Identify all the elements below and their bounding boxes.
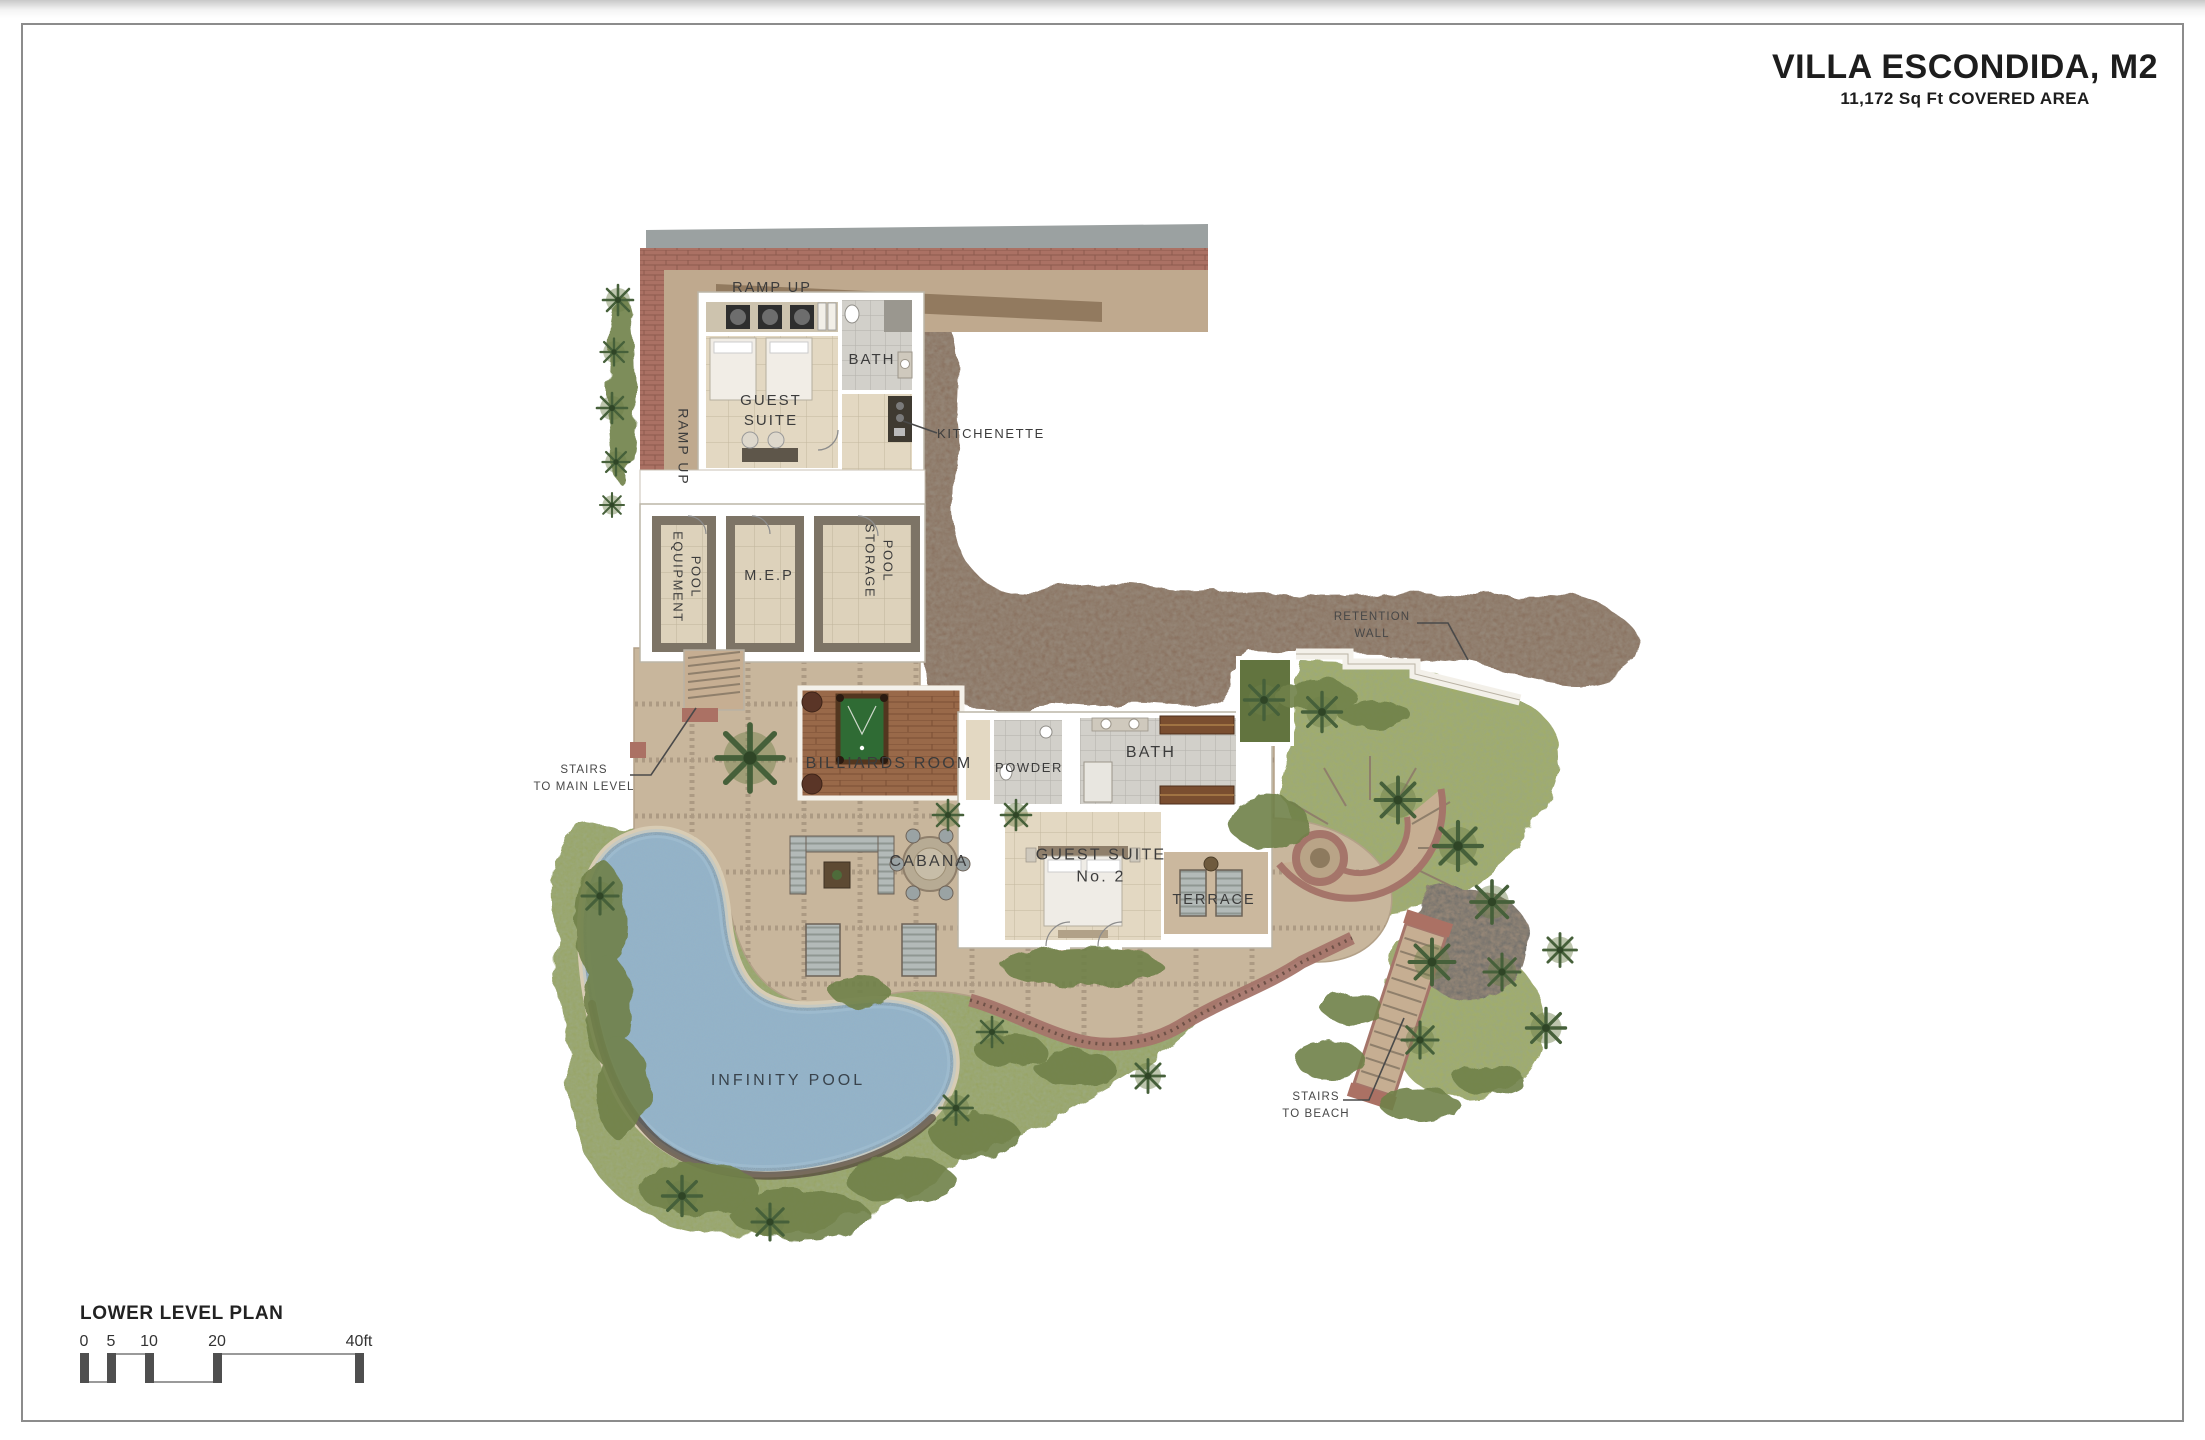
lower-building — [958, 712, 1272, 950]
room-label-cabana: CABANA — [890, 851, 969, 873]
scale-bar-segment — [222, 1353, 355, 1355]
shower — [884, 300, 912, 332]
scale-bar-block — [145, 1353, 154, 1383]
scale-bar-block — [107, 1353, 116, 1383]
fire-pit-center — [1310, 848, 1330, 868]
tub — [1084, 762, 1112, 802]
washer-dryer-units — [726, 303, 836, 330]
club-chair — [802, 774, 822, 794]
room-label-pool-storage: POOL STORAGE — [861, 524, 896, 599]
scale-tick-0: 0 — [80, 1333, 89, 1351]
scale-bar-segment — [116, 1353, 145, 1355]
scale-tick-10: 10 — [140, 1333, 158, 1351]
scale-bar: LOWER LEVEL PLAN 0 5 10 20 40ft — [80, 1303, 400, 1325]
room-label-kitchenette: KITCHENETTE — [937, 425, 1045, 443]
scale-tick-5: 5 — [107, 1333, 116, 1351]
billiards-room — [800, 688, 962, 798]
scale-bar-block — [80, 1353, 89, 1383]
room-label-powder: POWDER — [995, 759, 1063, 777]
brick-pillar — [630, 742, 646, 758]
note-label-retention-wall: RETENTION WALL — [1334, 609, 1410, 644]
room-label-billiards-room: BILLIARDS ROOM — [806, 753, 973, 775]
cabana-lounge — [790, 836, 894, 894]
room-label-guest-suite-2: GUEST SUITE No. 2 — [1036, 844, 1167, 887]
plan-name: LOWER LEVEL PLAN — [80, 1303, 400, 1325]
kitchenette-counter — [888, 396, 912, 442]
room-label-mep: M.E.P — [744, 567, 793, 587]
room-label-ramp-up-top: RAMP UP — [732, 279, 812, 299]
note-label-stairs-to-beach: STAIRS TO BEACH — [1282, 1089, 1349, 1124]
sink — [901, 360, 910, 369]
brick-wall-top — [640, 248, 1208, 270]
upper-guest-suite-building — [698, 292, 924, 479]
room-label-bath-lower: BATH — [1126, 742, 1176, 764]
plan-sheet: VILLA ESCONDIDA, M2 11,172 Sq Ft COVERED… — [0, 0, 2205, 1440]
sink — [1040, 726, 1052, 738]
note-label-stairs-to-main-level: STAIRS TO MAIN LEVEL — [533, 762, 634, 797]
room-label-infinity-pool: INFINITY POOL — [711, 1070, 865, 1092]
toilet — [845, 305, 859, 323]
scale-tick-40: 40ft — [346, 1333, 373, 1351]
room-label-ramp-up-side: RAMP UP — [674, 408, 693, 486]
room-label-guest-suite: GUEST SUITE — [740, 391, 802, 432]
scale-bar-block — [355, 1353, 364, 1383]
double-vanity — [1092, 718, 1148, 731]
scale-bar-block — [213, 1353, 222, 1383]
room-label-terrace: TERRACE — [1172, 891, 1255, 911]
club-chair — [802, 692, 822, 712]
floor-plan-canvas — [0, 0, 2205, 1440]
scale-bar-segment — [89, 1381, 107, 1383]
scale-tick-20: 20 — [208, 1333, 226, 1351]
room-label-pool-equipment: POOL EQUIPMENT — [669, 531, 704, 623]
scale-bar-segment — [154, 1381, 213, 1383]
room-label-bath-upper: BATH — [849, 350, 896, 370]
